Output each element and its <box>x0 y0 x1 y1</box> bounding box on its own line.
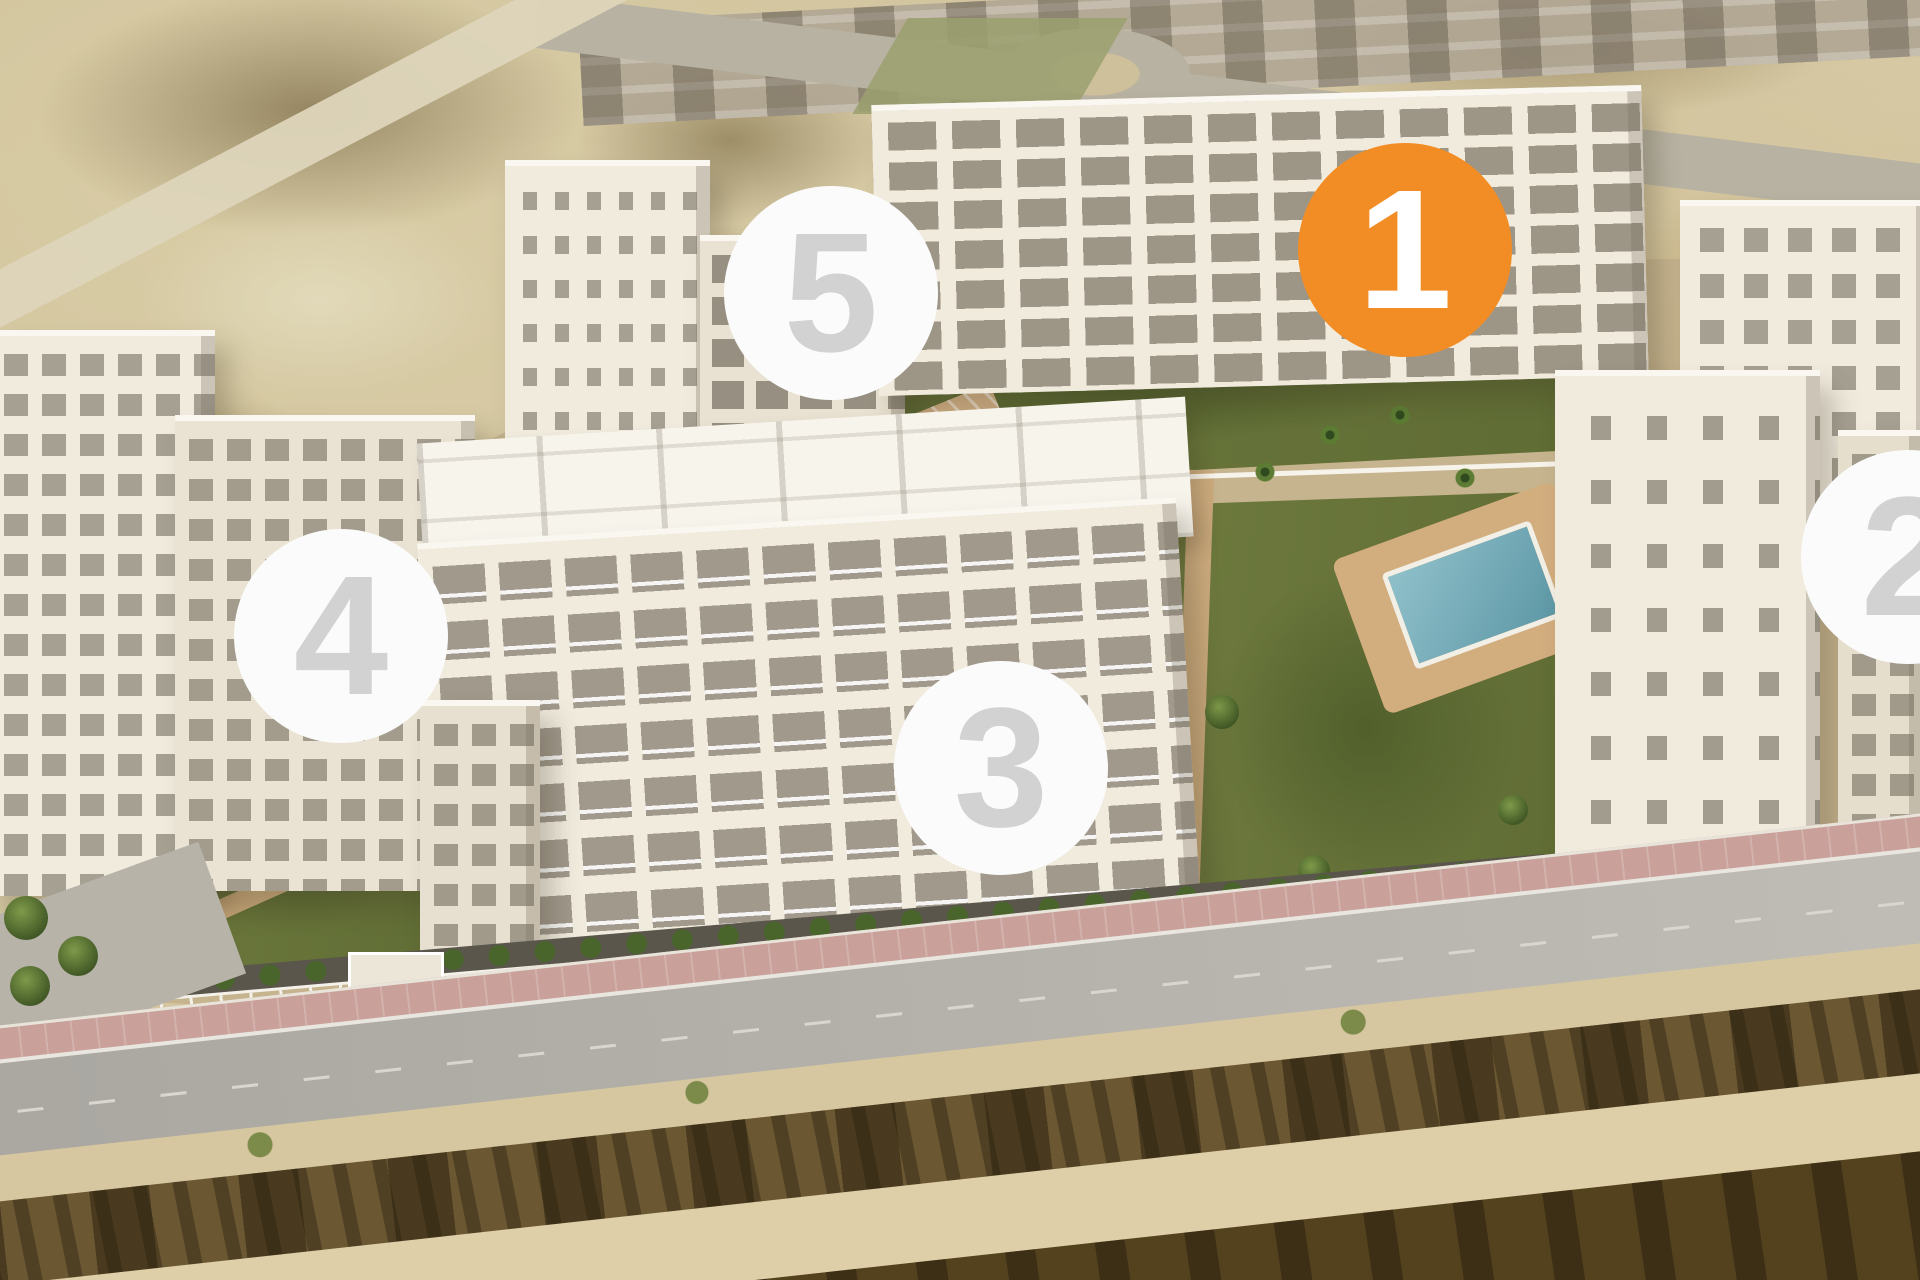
tree <box>10 966 50 1006</box>
building-marker-3-label: 3 <box>954 683 1049 853</box>
tree <box>58 936 98 976</box>
tree <box>1205 695 1239 729</box>
building-marker-4[interactable]: 4 <box>234 529 448 743</box>
palm-tree <box>1455 468 1475 488</box>
building-marker-1-label: 1 <box>1358 165 1453 335</box>
building-marker-5-label: 5 <box>784 208 879 378</box>
tree <box>1498 795 1528 825</box>
building-marker-3[interactable]: 3 <box>894 661 1108 875</box>
building-marker-4-label: 4 <box>294 551 389 721</box>
building-marker-1[interactable]: 1 <box>1298 143 1512 357</box>
palm-tree <box>1320 425 1340 445</box>
building-3-annex <box>420 700 540 966</box>
tree <box>4 896 48 940</box>
palm-tree <box>1255 462 1275 482</box>
aerial-site-render: 1 2 3 4 5 <box>0 0 1920 1280</box>
palm-tree <box>1390 405 1410 425</box>
building-marker-2-label: 2 <box>1861 472 1920 642</box>
building-marker-5[interactable]: 5 <box>724 186 938 400</box>
building-1-block <box>871 85 1648 396</box>
